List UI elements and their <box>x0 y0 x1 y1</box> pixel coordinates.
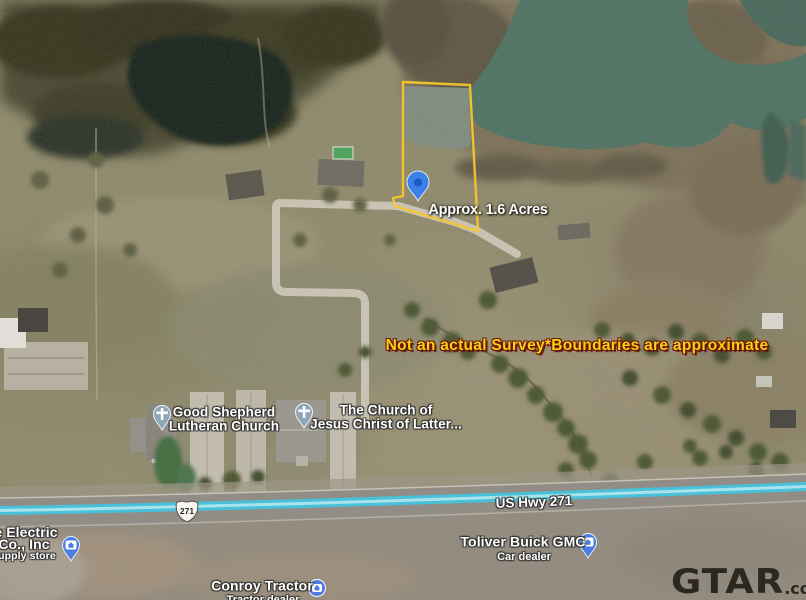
poi-label-electric[interactable]: le Electric Co., Inc supply store <box>0 526 58 562</box>
watermark-suffix: .com <box>784 581 806 597</box>
poi-label-line: Jesus Christ of Latter... <box>310 417 462 431</box>
poi-label-line: The Church of <box>310 404 462 418</box>
poi-label-line: supply store <box>0 550 58 562</box>
poi-label-good-shepherd[interactable]: Good Shepherd Lutheran Church <box>169 406 279 433</box>
poi-label-line: Lutheran Church <box>169 419 279 433</box>
poi-label-lds-church[interactable]: The Church of Jesus Christ of Latter... <box>310 404 462 431</box>
disclaimer-label: Not an actual Survey*Boundaries are appr… <box>386 337 769 355</box>
gtar-watermark: GTAR.com <box>671 563 806 600</box>
poi-label-line: Good Shepherd <box>169 406 279 420</box>
poi-label-tractor-type[interactable]: Tractor dealer <box>227 594 300 600</box>
poi-label-dealer-type[interactable]: Car dealer <box>497 551 551 563</box>
terrain-layer: 271 <box>0 0 806 600</box>
acreage-label: Approx. 1.6 Acres <box>428 202 547 218</box>
satellite-map: 271 Approx. 1.6 Acres Not an actual Surv… <box>0 0 806 600</box>
poi-label-line: Co., Inc <box>0 538 58 550</box>
route-shield-number: 271 <box>180 506 194 516</box>
poi-label-tractor[interactable]: Conroy Tractor <box>211 579 313 593</box>
highway-name-label: US Hwy 271 <box>495 493 572 511</box>
poi-label-dealer[interactable]: Toliver Buick GMC <box>460 535 585 549</box>
watermark-brand: GTAR <box>671 564 784 598</box>
